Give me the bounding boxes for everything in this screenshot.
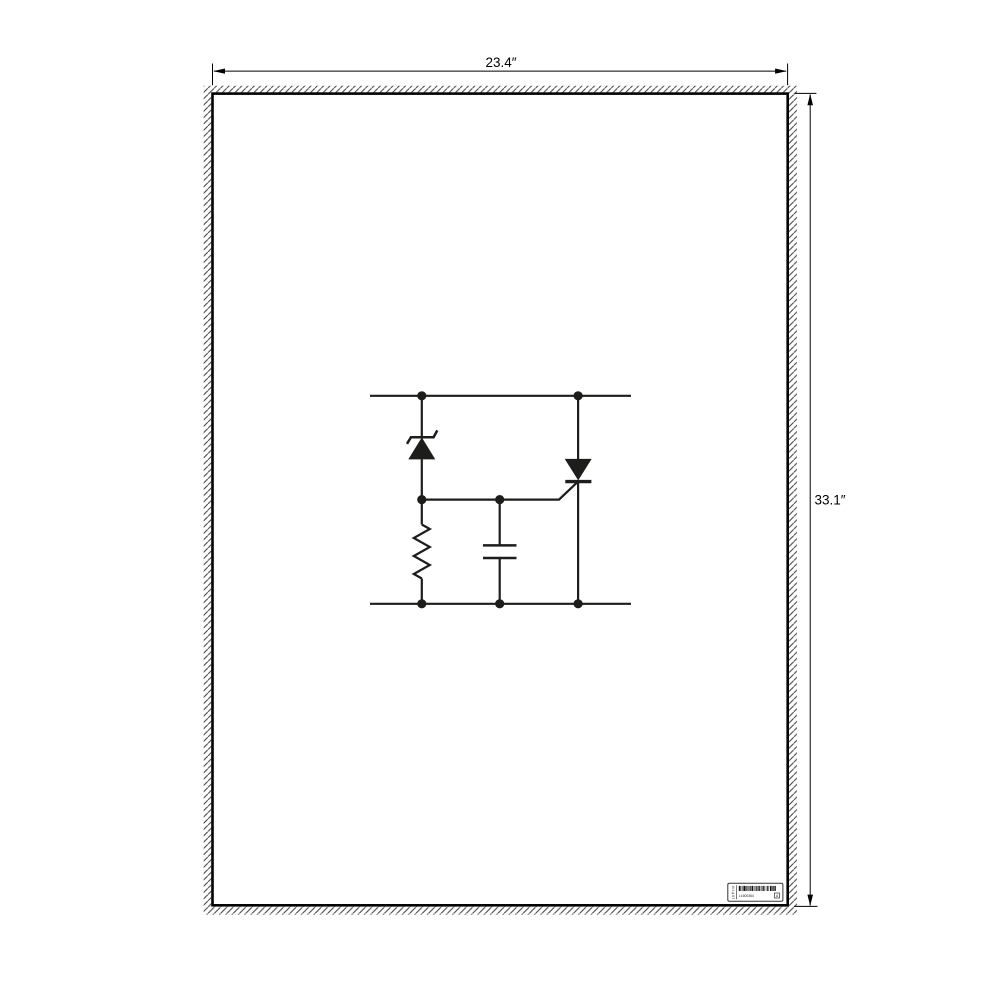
svg-text:33.1″: 33.1″ xyxy=(815,493,846,508)
svg-text:L1600364: L1600364 xyxy=(739,894,754,898)
svg-text:23.4″: 23.4″ xyxy=(485,55,516,70)
svg-text:LbPrnt: LbPrnt xyxy=(731,886,735,900)
